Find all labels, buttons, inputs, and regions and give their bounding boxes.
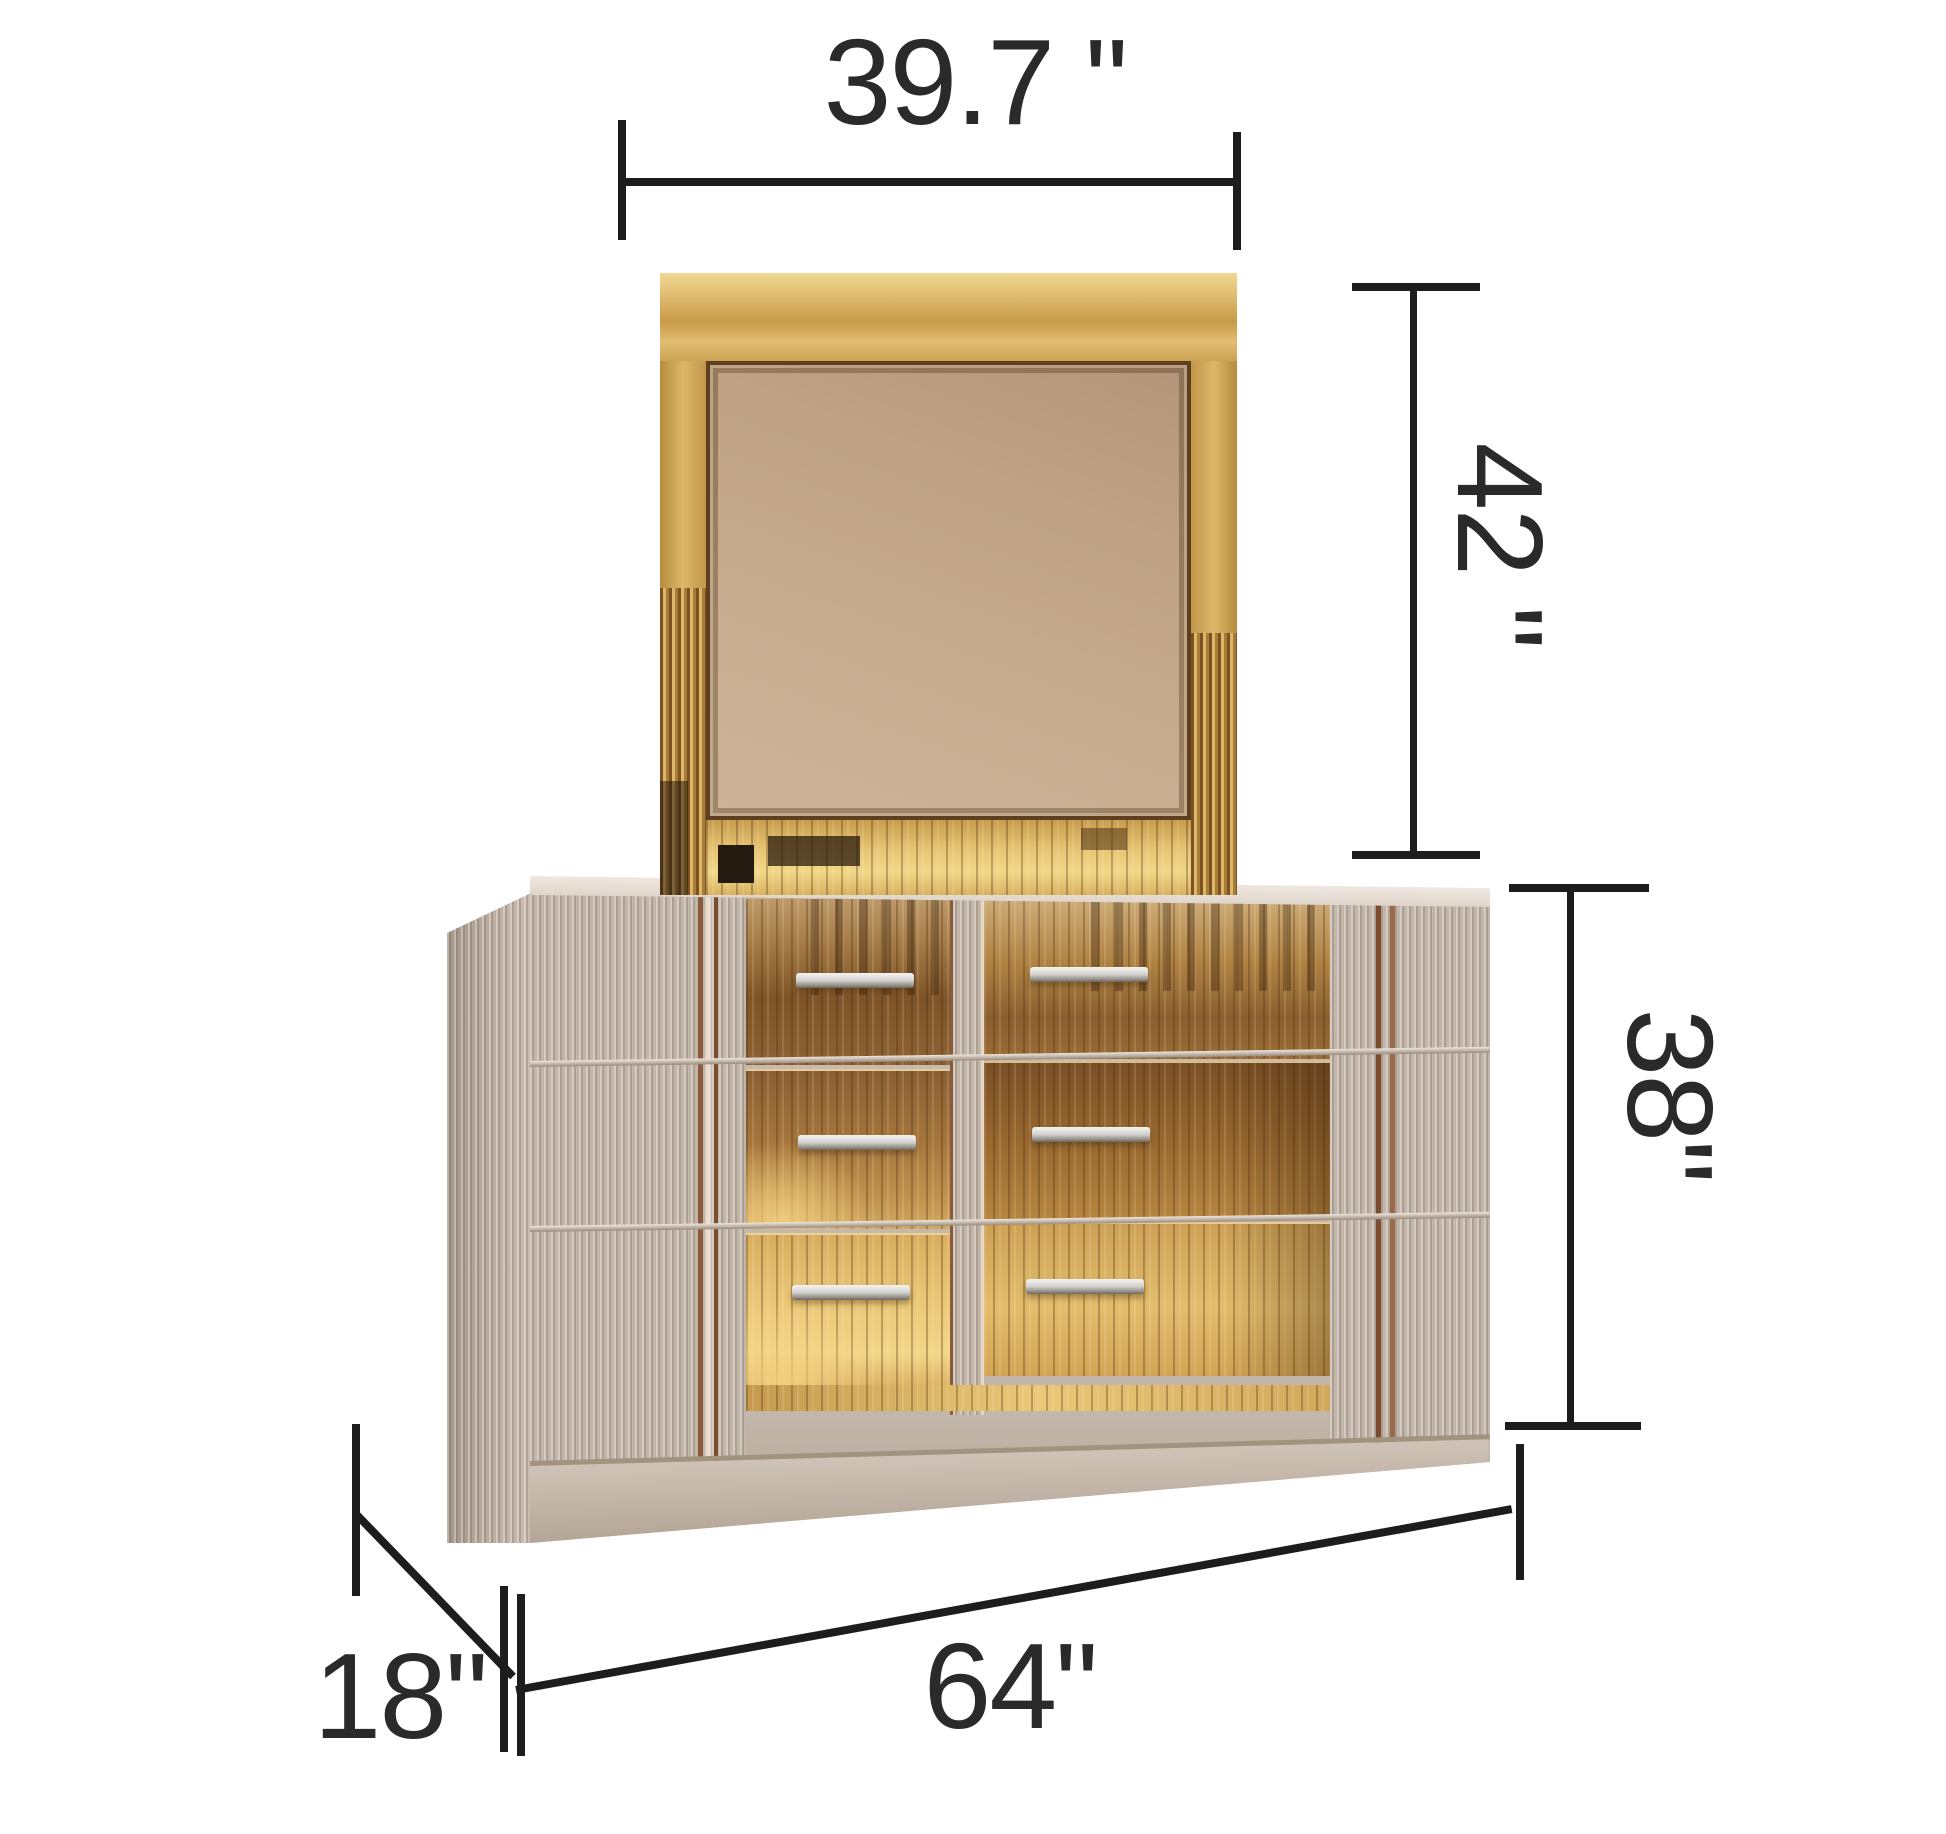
drawer-handle: [798, 1135, 916, 1150]
drawer-handle: [1030, 967, 1148, 982]
dresser-depth-label: 18": [295, 1632, 505, 1760]
dresser-corner-tick-inner: [517, 1594, 525, 1756]
mirror-width-dimension-line: [622, 178, 1237, 186]
mirror-width-tick-left: [618, 120, 626, 240]
fluted-texture: [953, 885, 981, 1415]
metal-accent-line: [1376, 885, 1381, 1455]
dresser-left-stile: [530, 885, 746, 1495]
fluted-texture: [447, 893, 531, 1543]
mirror-frame-right: [1191, 361, 1237, 895]
mirror-frame-bottom: [706, 820, 1191, 895]
dresser-bottom-rail: [746, 1385, 1330, 1411]
drawer-middle-right: [978, 1061, 1330, 1219]
drawer-handle: [796, 973, 914, 988]
reflection-glow: [746, 1288, 889, 1387]
drawer-handle: [1032, 1127, 1150, 1142]
mirror-height-tick-top: [1352, 283, 1480, 291]
dresser-depth-tick-left: [352, 1424, 360, 1596]
metal-accent-line: [706, 885, 711, 1495]
vanity-mirror: [660, 273, 1237, 895]
dresser-height-tick-top: [1509, 884, 1649, 892]
dresser-right-stile: [1330, 885, 1490, 1455]
mirror-frame-top: [660, 273, 1237, 361]
mirror-width-tick-right: [1233, 132, 1241, 250]
mirror-height-tick-bottom: [1352, 851, 1480, 859]
drawer-bottom-left: [746, 1233, 950, 1387]
dimension-diagram: 39.7 " 42 " 38" 64" 18": [0, 0, 1946, 1834]
reflection-mark: [1081, 828, 1127, 850]
dresser-width-label: 64": [860, 1622, 1160, 1750]
reflection-shadow: [1224, 1063, 1330, 1219]
dresser-left-side-panel: [447, 893, 531, 1543]
reflection-mark: [768, 836, 860, 866]
reflection-shadow: [1224, 1224, 1330, 1376]
dresser-height-label: 38": [1605, 970, 1735, 1220]
fluted-texture: [1330, 885, 1490, 1455]
dresser-front: [530, 885, 1490, 1545]
metal-accent-line: [698, 885, 703, 1495]
frame-shadow: [660, 781, 688, 895]
metal-accent-line: [1390, 885, 1395, 1455]
mirror-stripe-texture: [746, 1385, 1330, 1411]
dresser-height-dimension-line: [1567, 888, 1574, 1430]
reflection-mark: [718, 845, 754, 883]
dresser-center-stile: [950, 885, 984, 1415]
dresser-height-tick-bottom: [1505, 1422, 1641, 1430]
drawer-bottom-right: [978, 1222, 1330, 1376]
drawer-handle: [792, 1285, 910, 1300]
frame-slat-texture: [1191, 633, 1237, 895]
mirror-height-label: 42 ": [1435, 425, 1565, 665]
dresser-width-tick-right: [1516, 1444, 1524, 1580]
mirror-width-label: 39.7 ": [655, 18, 1295, 146]
mirror-height-dimension-line: [1410, 288, 1417, 856]
drawer-handle: [1026, 1279, 1144, 1294]
metal-accent-line: [714, 885, 718, 1495]
mirror-frame-left: [660, 361, 706, 895]
mirror-glass: [706, 361, 1191, 820]
